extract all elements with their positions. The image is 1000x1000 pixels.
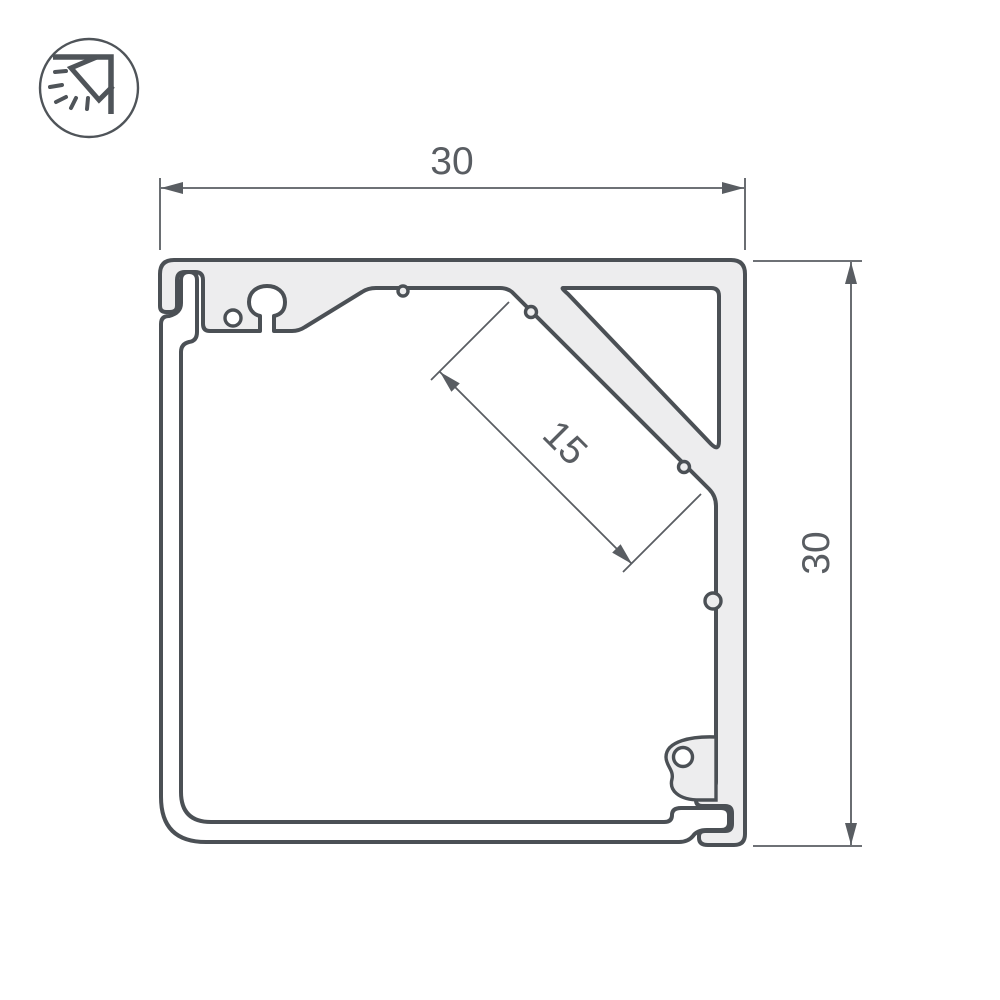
arrowhead-right: [722, 182, 744, 194]
led-face-notch-lower: [679, 462, 690, 473]
underside-notch: [398, 286, 408, 296]
aluminum-profile-body: [160, 260, 745, 845]
arrowhead-top: [845, 262, 857, 284]
underside-round-hole: [225, 310, 241, 326]
screw-port-boss: [666, 737, 716, 800]
wall-rib-notch: [705, 593, 721, 609]
technical-drawing-page: 30 30 15: [0, 0, 1000, 1000]
width-dimension-label: 30: [430, 140, 473, 183]
height-dimension-label: 30: [795, 531, 838, 574]
led-surface-dimension-label: 15: [534, 413, 595, 474]
extension-line: [623, 494, 701, 572]
profile-cross-section-drawing: 30 30 15: [0, 0, 1000, 1000]
extension-line: [431, 302, 509, 380]
corner-light-icon: [40, 39, 138, 137]
width-dimension: 30: [160, 140, 745, 250]
dimension-line: [440, 372, 632, 564]
height-dimension: 30: [753, 261, 862, 846]
arrowhead-bottom: [845, 823, 857, 845]
arrowhead-left: [161, 182, 183, 194]
icon-light-rays: [50, 71, 88, 109]
icon-lamp-shape: [71, 57, 113, 100]
led-face-notch-upper: [526, 307, 537, 318]
profile-metal-area: [160, 260, 745, 845]
diffuser-cover: [161, 272, 729, 842]
screw-port-hole: [674, 748, 693, 767]
